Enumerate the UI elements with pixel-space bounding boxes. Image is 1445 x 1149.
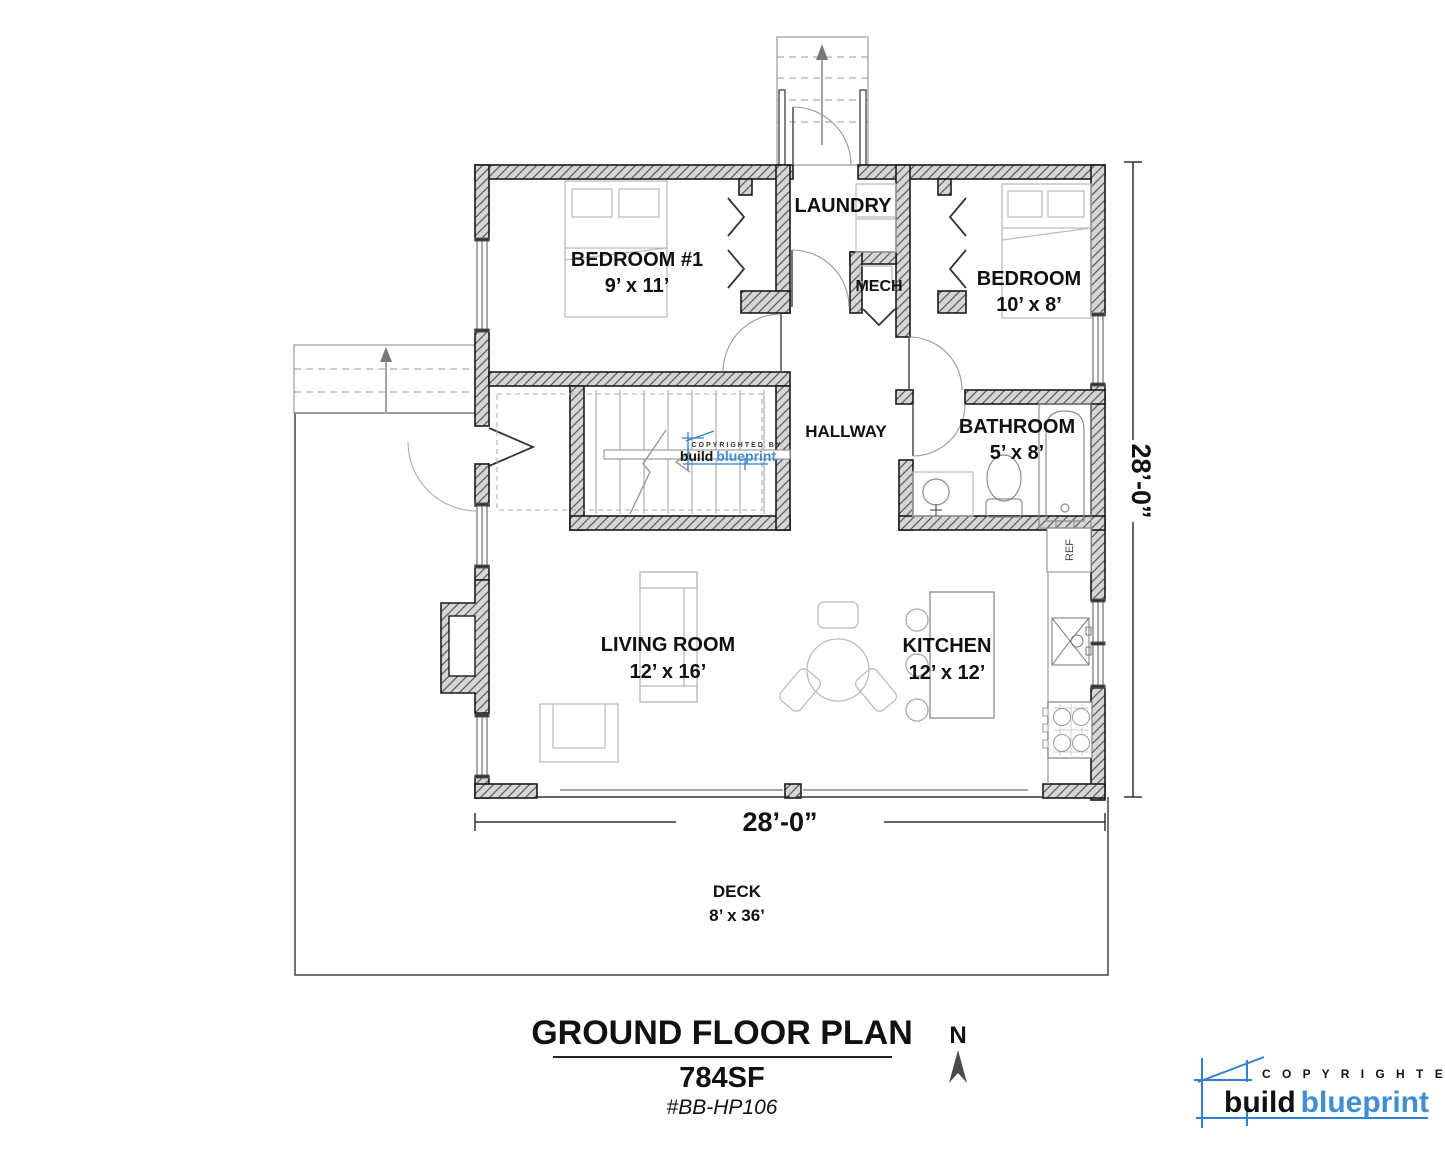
dimension-bottom: 28’-0” xyxy=(475,807,1105,837)
north-label: N xyxy=(949,1022,966,1049)
room-dims-living: 12’ x 16’ xyxy=(630,661,707,683)
logo-blueprint: blueprint xyxy=(1301,1086,1429,1119)
bedroom2-door xyxy=(909,337,962,390)
bathroom-door xyxy=(913,404,965,456)
center-watermark: COPYRIGHTED BY buildblueprint xyxy=(680,431,783,470)
room-label-living: LIVING ROOM xyxy=(601,634,735,656)
window-bedroom2-east xyxy=(1091,313,1105,386)
living-room-patio-door xyxy=(408,428,533,511)
closet2-stub xyxy=(938,291,966,313)
dimension-bottom-label: 28’-0” xyxy=(742,807,817,837)
plan-title: GROUND FLOOR PLAN xyxy=(531,1014,913,1052)
closet1-bifold-doors xyxy=(728,198,744,288)
plan-area: 784SF xyxy=(679,1062,764,1094)
title-block: GROUND FLOOR PLAN 784SF #BB-HP106 xyxy=(531,1014,913,1119)
watermark-build: build xyxy=(680,448,713,464)
brand-logo: C O P Y R I G H T E D B Y buildblueprint xyxy=(1194,1057,1445,1128)
wall-bedroom1-south xyxy=(489,372,790,386)
wall-stair-west xyxy=(570,386,584,530)
wall-bottom-right xyxy=(1043,784,1105,798)
door-jamb xyxy=(860,90,866,167)
room-label-mech: MECH xyxy=(855,278,902,295)
compass-needle-icon xyxy=(949,1050,967,1083)
plan-number: #BB-HP106 xyxy=(667,1096,778,1119)
closet2-jamb xyxy=(938,179,951,195)
mech-bifold-door xyxy=(863,309,895,325)
logo-build: build xyxy=(1224,1086,1296,1119)
room-dims-bathroom: 5’ x 8’ xyxy=(990,442,1045,464)
logo-brand: buildblueprint xyxy=(1224,1086,1429,1119)
bedroom1-door xyxy=(723,314,781,372)
closet1-jamb xyxy=(739,179,752,195)
stair-break-line xyxy=(630,430,666,514)
wall-left xyxy=(475,165,489,240)
window-bedroom1-west xyxy=(475,238,489,332)
stove xyxy=(1043,702,1092,758)
side-stair-landing xyxy=(294,345,475,413)
wall-bathroom-north xyxy=(896,390,913,404)
window-living-west-lower xyxy=(475,714,489,778)
room-label-bathroom: BATHROOM xyxy=(959,416,1075,438)
wall-left xyxy=(475,330,489,426)
floor-plan-drawing: REF xyxy=(0,0,1445,1149)
landing-steps xyxy=(294,369,475,392)
closet2-bifold-doors xyxy=(950,198,966,288)
room-dims-deck: 8’ x 36’ xyxy=(709,906,765,925)
glass-wall-post xyxy=(785,784,801,798)
up-arrow-icon xyxy=(816,44,828,60)
wall-right xyxy=(1091,165,1105,315)
room-labels: BEDROOM #1 9’ x 11’ LAUNDRY MECH BEDROOM… xyxy=(571,195,1081,925)
dimension-right-label: 28’-0” xyxy=(1126,443,1156,518)
wall-top-left xyxy=(475,165,793,179)
room-dims-kitchen: 12’ x 12’ xyxy=(909,662,986,684)
closet1-stub xyxy=(741,291,790,313)
floor-plan-page: REF xyxy=(0,0,1445,1149)
door-jamb xyxy=(779,90,785,167)
kitchen-counter: REF xyxy=(1043,528,1092,784)
room-label-deck: DECK xyxy=(713,882,762,901)
watermark-brand: buildblueprint xyxy=(680,448,777,464)
up-arrow-icon xyxy=(380,347,392,362)
armchair xyxy=(540,704,618,762)
window-kitchen-east xyxy=(1091,599,1105,688)
logo-copyrighted-by: C O P Y R I G H T E D B Y xyxy=(1262,1067,1445,1081)
window-living-west-upper xyxy=(475,503,489,568)
entry-stoop xyxy=(777,37,868,167)
toilet xyxy=(986,455,1022,517)
room-label-hallway: HALLWAY xyxy=(805,422,887,441)
room-label-bedroom1: BEDROOM #1 xyxy=(571,249,703,271)
dining-table xyxy=(777,602,899,714)
bathroom-vanity xyxy=(913,472,973,516)
wall-top-right xyxy=(858,165,1105,179)
wall-left xyxy=(475,464,489,506)
north-arrow: N xyxy=(949,1022,967,1083)
room-label-bedroom2: BEDROOM xyxy=(977,268,1081,290)
room-dims-bedroom1: 9’ x 11’ xyxy=(605,275,670,297)
laundry-door xyxy=(792,250,849,307)
firebox xyxy=(449,616,475,676)
wall-bathroom-north xyxy=(965,390,1105,404)
room-dims-bedroom2: 10’ x 8’ xyxy=(996,294,1062,316)
wall-bottom-left xyxy=(475,784,537,798)
wall-stair-south xyxy=(570,516,790,530)
wall-right xyxy=(1091,385,1105,600)
room-label-laundry: LAUNDRY xyxy=(794,195,892,217)
watermark-blueprint: blueprint xyxy=(716,448,776,464)
room-label-kitchen: KITCHEN xyxy=(903,635,992,657)
wall-laundry-bedroom2 xyxy=(896,165,910,337)
ref-label: REF xyxy=(1064,539,1076,561)
dimension-right: 28’-0” xyxy=(1124,162,1156,797)
kitchen-sink xyxy=(1052,618,1091,665)
